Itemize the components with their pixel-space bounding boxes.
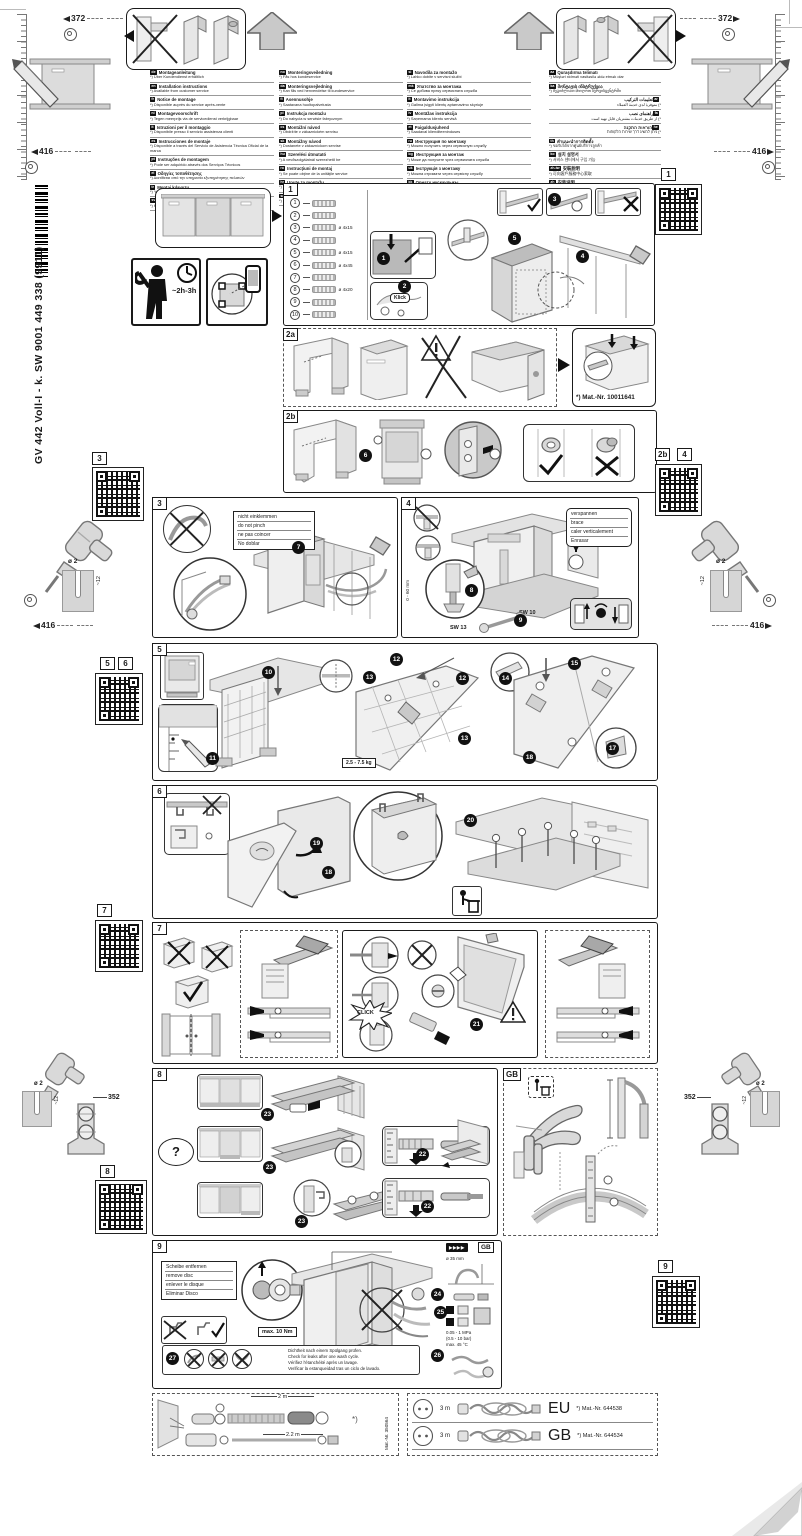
section-2a-label: 2a: [283, 328, 298, 341]
crossed-door-sketch: [624, 13, 674, 65]
crop-mark: [0, 9, 26, 10]
region-badge: EU: [548, 1400, 570, 1418]
language-entry: elΟδηγίες τοποθέτησης*) Διατίθεται από τ…: [150, 170, 274, 184]
brace-note: verspannenbracecaler verticalementEnrasa…: [566, 508, 632, 547]
language-note: *) Über Kundendienst erhältlich: [150, 75, 274, 80]
hang-door-panel-sketch: [226, 795, 352, 913]
qr-section-label: 5: [100, 657, 115, 670]
cord-length: 3 m: [440, 1433, 450, 1439]
remove-disc-note: Scheibe entfernenremove discenlever le d…: [161, 1261, 237, 1300]
part-row: 3 ø 4x15: [290, 222, 353, 234]
qr-code: [95, 1180, 147, 1234]
section-7-label: 7: [152, 922, 167, 935]
torque-label: max. 10 Nm: [258, 1327, 297, 1337]
warning-no-housing-sketch: [420, 334, 550, 402]
dim-416-right: 416: [712, 146, 777, 156]
part-callout-number: 8: [290, 285, 300, 295]
water-pressure-label: 0.05 - 1 MPa(0.5 - 10 bar)max. 45 °C: [446, 1330, 471, 1348]
language-note: *) ขอรับได้จากศูนย์บริการลูกค้า: [549, 144, 661, 149]
step-dot: 1: [377, 252, 390, 265]
drill-dia-label: ø 2: [68, 558, 77, 565]
language-entry: bgИнструкция за монтаж*) Може да получит…: [407, 151, 531, 165]
part-row: 2: [290, 209, 353, 221]
language-entry: ltMontavimo instrukcija*) Galima įsigyti…: [407, 96, 531, 110]
language-entry: ptInstruções de montagem*) Pode ser adqu…: [150, 156, 274, 170]
step-dot: 25: [434, 1306, 447, 1319]
klick-label: Klick: [390, 293, 410, 303]
language-entry: deMontageanleitung*) Über Kundendienst e…: [150, 69, 274, 83]
language-entry: etPaigaldusjuhend*) Saadaval klienditeen…: [407, 124, 531, 138]
wrench-size-label: SW 13: [450, 625, 467, 632]
part-icon: [312, 200, 336, 207]
language-note: *) Διατίθεται από την υπηρεσία εξυπηρέτη…: [150, 176, 274, 181]
part-size: ø 4x20: [339, 287, 353, 292]
step-dot: 6: [359, 449, 372, 462]
language-note: *) Disponible a través del Servicio de A…: [150, 144, 274, 154]
language-note: *) Може да получите чрез сервизната служ…: [407, 158, 531, 163]
power-cord-rows: 3 m EU *) Mat.-Nr. 644538 3 m: [412, 1396, 653, 1450]
hose-length-bottom: 2.2 m: [262, 1432, 324, 1438]
region-badge: GB: [548, 1427, 571, 1445]
qr-code: [655, 464, 702, 516]
language-entry: frNotice de montage*) Disponible auprès …: [150, 96, 274, 110]
template-on-door-sketch: [336, 652, 486, 774]
gb-fast-forward-chip: ▶▶▶▶: [446, 1243, 468, 1252]
drill-depth-label: ~12: [700, 576, 706, 585]
qr-section-label: 1: [661, 168, 676, 181]
step-dot: 22: [416, 1148, 429, 1161]
part-size: ø 4x45: [339, 263, 353, 268]
hook-detail-circle: [352, 790, 444, 882]
language-entry: enInstallation instructions*) Available …: [150, 83, 274, 97]
step-dot: 11: [206, 752, 219, 765]
plinth-panel-sketch-a: [268, 1074, 378, 1124]
pencil-cabinet-sketch-right: [690, 55, 790, 115]
crop-mark: [789, 0, 790, 24]
step-dot: 12: [456, 672, 469, 685]
qr-section-label: 4: [677, 448, 692, 461]
tap-hint-box: [161, 1316, 227, 1344]
under-sink-sketch: [262, 1250, 442, 1360]
page-corner-fold: [732, 1482, 802, 1536]
language-entry: nlMontagevoorschrift*) Tegen meerprijs v…: [150, 110, 274, 124]
language-entry: fiAsennusohje*) Saatavana huoltopalvelus…: [279, 96, 403, 110]
power-cord-icon: [456, 1426, 542, 1446]
door-panel-profiles: [180, 12, 242, 66]
language-note: *) Available from customer service: [150, 89, 274, 94]
language-entry: huSzerelési útmutató*) A vevőszolgálatná…: [279, 151, 403, 165]
step-dot: 8: [465, 584, 478, 597]
language-note: *) Do nabycia w serwisie fabrycznym: [279, 117, 403, 122]
power-cord-row: 3 m EU *) Mat.-Nr. 644538: [412, 1396, 653, 1423]
inner-door-screws-sketch: [452, 792, 652, 914]
step-dot: 27: [166, 1352, 179, 1365]
fixing-detail-sketch: [346, 933, 534, 1055]
step-dot: 4: [576, 250, 589, 263]
part-icon: [312, 262, 336, 269]
section-4-label: 4: [401, 497, 416, 510]
language-entry: kaმონტაჟის ინსტრუქცია*) შეგიძლიათ მიიღოთ…: [549, 83, 661, 97]
drill-hole-mark: [25, 161, 38, 174]
instruction-sheet: 372 416: [0, 0, 802, 1536]
part-callout-number: 5: [290, 248, 300, 258]
language-list-col4: azQuraşdırma təlimatı*) Müştəri xidməti …: [549, 69, 661, 193]
power-cord-icon: [456, 1399, 542, 1419]
part-row: 1: [290, 197, 353, 209]
cabinet-variants-icons: [160, 932, 236, 1012]
part-callout-number: 7: [290, 273, 300, 283]
language-entry: noMonteringsveiledning*) Fås hos kundese…: [279, 69, 403, 83]
step-dot: 18: [322, 866, 335, 879]
section-5-label: 5: [152, 643, 167, 656]
part-icon: [312, 311, 336, 318]
language-note: *) Можно получить через сервисную службу: [407, 144, 531, 149]
dim-416-left: 416: [28, 146, 93, 156]
language-note: *) Galima įsigyti klientų aptarnavimo sk…: [407, 103, 531, 108]
language-entry: skMontážny návod*) Dostanete v zákazníck…: [279, 138, 403, 152]
language-note: *) از طریق خدمات مشتریان قابل تهیه است: [549, 117, 661, 122]
appliance-front-sketch: [362, 418, 440, 488]
step-dot: 3: [548, 193, 561, 206]
qr-code: [655, 184, 702, 235]
step-dot: 7: [292, 541, 305, 554]
qr-section-label: 6: [118, 657, 133, 670]
side-panel-kit-sketch: [576, 332, 652, 390]
door-weight-label: 2.5 - 7.5 kg: [342, 758, 376, 768]
model-code-vertical: GV 442 Voll-I - k. SW 9001 449 338 (9911…: [33, 284, 45, 464]
part-icon: [312, 274, 336, 281]
kitchen-variant-mini: [197, 1182, 263, 1218]
language-note: *) Fås hos kundeservice: [279, 75, 403, 80]
part-row: 8 ø 4x20: [290, 284, 353, 296]
language-note: *) Се добива преку сервисната служба: [407, 89, 531, 94]
appliance-front-mini: [160, 652, 204, 700]
language-entry: mkУпатство за монтажа*) Се добива преку …: [407, 83, 531, 97]
language-entry: csMontážní návod*) Obdržíte v zákaznické…: [279, 124, 403, 138]
section-3-label: 3: [152, 497, 167, 510]
section-2b-label: 2b: [283, 410, 298, 423]
language-entry: zh-tw安裝說明*) 可向客戶服務中心索取: [549, 165, 661, 179]
language-note: *) Pode ser adquirido através dos Serviç…: [150, 163, 274, 168]
door-panel-profiles: [560, 12, 622, 66]
part-size: ø 4x15: [339, 225, 353, 230]
step-dot: 13: [458, 732, 471, 745]
step-dot: 24: [431, 1288, 444, 1301]
section-gb-label: GB: [503, 1068, 521, 1081]
crossed-door-sketch: [131, 13, 181, 65]
language-entry: roInstrucţiuni de montaj*) Se poate obţi…: [279, 165, 403, 179]
drill-hole-mark: [763, 594, 776, 607]
language-note: *) Saatavana huoltopalvelusta: [279, 103, 403, 108]
hose-through-sketch: [446, 1262, 496, 1288]
socket-icon: [412, 1425, 434, 1447]
language-note: *) ניתן להשיג דרך שירות הלקוחות: [549, 130, 661, 135]
warning-triangle-icon: [500, 1000, 526, 1024]
svg-text:*): *): [352, 1415, 358, 1424]
step-dot: 20: [464, 814, 477, 827]
height-range-label: 0 - 60 mm: [405, 580, 410, 601]
bracket-ok-wrong-inset: [164, 793, 230, 855]
plug-detail-circle: [443, 420, 503, 480]
part-icon: [312, 249, 336, 256]
dim-372-right: 372: [678, 13, 743, 23]
part-icon: [312, 224, 336, 231]
language-entry: ruИнструкция по монтажу*) Можно получить…: [407, 138, 531, 152]
qr-code: [652, 1276, 700, 1328]
part-row: 10: [290, 309, 353, 321]
language-entry: ko설치 설명서*) 서비스 센터에서 구입 가능: [549, 151, 661, 165]
section-9-label: 9: [152, 1240, 167, 1253]
part-row: 4: [290, 234, 353, 246]
side-panel-mat-nr: *) Mat.-Nr. 10011641: [576, 394, 635, 401]
step-dot: 18: [523, 751, 536, 764]
language-entry: esInstrucciones de montaje*) Disponible …: [150, 138, 274, 157]
no-trap-icon: [232, 1349, 252, 1369]
part-row: 6 ø 4x45: [290, 259, 353, 271]
step-dot: 9: [514, 614, 527, 627]
step-dot: 10: [262, 666, 275, 679]
arrow-up-icon-right: [504, 12, 554, 50]
language-entry: faراهنمای نصب*) از طریق خدمات مشتریان قا…: [549, 110, 661, 124]
drill-depth-label: ~12: [96, 576, 102, 585]
section-8-label: 8: [152, 1068, 167, 1081]
kitchen-variant-mini: [197, 1126, 263, 1162]
fixing-variant-b-sketch: [549, 934, 646, 1054]
pencil-cabinet-sketch-left: [12, 55, 112, 115]
language-entry: azQuraşdırma təlimatı*) Müştəri xidməti …: [549, 69, 661, 83]
cord-mat-nr: *) Mat.-Nr. 644534: [577, 1433, 623, 1439]
install-time-label: ~2h-3h: [172, 286, 196, 295]
divider: [367, 190, 368, 320]
part-callout-number: 9: [290, 297, 300, 307]
drill-depth-label: ~12: [742, 1096, 748, 1104]
gb-chip: GB: [478, 1242, 494, 1253]
language-entry: slNavodila za montažo*) Lahko dobite v s…: [407, 69, 531, 83]
qr-code: [92, 467, 144, 521]
language-note: *) Müştəri xidməti vasitəsilə əldə etmək…: [549, 75, 661, 80]
niche-sketch: [292, 336, 350, 400]
step-dot: 23: [295, 1215, 308, 1228]
clock-icon: [176, 262, 198, 284]
parts-list: 1 2 3 ø 4x15 4: [290, 197, 353, 321]
rail-wrong-mini: [595, 188, 641, 216]
part-callout-number: 2: [290, 211, 300, 221]
hinge-bracket-part: [694, 1102, 746, 1156]
language-note: *) Saadaval klienditeeninduses: [407, 130, 531, 135]
language-note: *) متوفرة لدى خدمة العملاء: [549, 103, 661, 108]
drill-dia-label: ø 2: [716, 558, 725, 565]
part-icon: [312, 286, 336, 293]
kitchen-variant-mini: [197, 1074, 263, 1110]
gap-wrong-detail: [412, 503, 442, 533]
language-note: *) შეგიძლიათ მიიღოთ სერვისცენტრში: [549, 89, 661, 94]
niche-sketch: [292, 418, 358, 486]
language-note: *) Disponibile presso il servizio assist…: [150, 130, 274, 135]
panel-fittings-sketch: [488, 650, 650, 774]
dim-352-right: 352: [684, 1094, 712, 1101]
hose-extension-sketch: *): [156, 1398, 374, 1452]
language-note: *) Se poate obţine de la unităţile servi…: [279, 172, 403, 177]
language-note: *) Lahko dobite v servisni službi: [407, 75, 531, 80]
step-dot: 5: [508, 232, 521, 245]
language-note: *) Можна отримати через сервісну службу: [407, 172, 531, 177]
language-note: *) Tegen meerprijs via de servicedienst …: [150, 117, 274, 122]
language-entry: thคำแนะนำการติดตั้ง*) ขอรับได้จากศูนย์บร…: [549, 138, 661, 152]
installer-icon: [135, 263, 177, 321]
socket-icon: [412, 1398, 434, 1420]
part-row: 7: [290, 271, 353, 283]
hose-routing-detail-circle: [172, 556, 248, 632]
step-dot: 2: [398, 280, 411, 293]
corner-install-sketch: [440, 1118, 495, 1170]
step-dot: 13: [363, 671, 376, 684]
qr-section-label: 3: [92, 452, 107, 465]
part-callout-number: 10: [290, 310, 300, 320]
arrow-up-icon-left: [247, 12, 297, 50]
language-note: *) A vevőszolgálatnál szerezhető be: [279, 158, 403, 163]
part-row: 5 ø 4x15: [290, 247, 353, 259]
no-kink-icon: [184, 1349, 204, 1369]
drill-hole-mark: [24, 594, 37, 607]
part-callout-number: 4: [290, 235, 300, 245]
double-door-schematic: [160, 1012, 222, 1058]
section-6-label: 6: [152, 785, 167, 798]
drill-hole-box: [710, 570, 742, 612]
question-cloud: ?: [158, 1138, 194, 1166]
step-dot: 23: [263, 1161, 276, 1174]
part-icon: [312, 212, 336, 219]
qr-section-label: 7: [97, 904, 112, 917]
drill-hole-mark: [762, 161, 775, 174]
cord-length: 3 m: [440, 1406, 450, 1412]
drill-hole-box: [62, 570, 94, 612]
part-icon: [312, 299, 336, 306]
arrow-right-icon: [676, 30, 692, 42]
clip-scale-box: [382, 1178, 490, 1218]
plinth-panel-sketch-b: [268, 1126, 378, 1176]
language-note: *) 可向客戶服務中心索取: [549, 172, 661, 177]
no-crush-icon: [208, 1349, 228, 1369]
click-label: CLICK: [357, 1010, 374, 1016]
language-entry: daMonteringsvejledning*) Kan fås ved hen…: [279, 83, 403, 97]
language-note: *) Saņemama klientu servisā: [407, 117, 531, 122]
section-1-label: 1: [283, 183, 298, 196]
drain-connect-sketch: [448, 1352, 496, 1382]
step-dot: 23: [261, 1108, 274, 1121]
step-dot: 17: [606, 742, 619, 755]
language-entry: ukІнструкція з монтажу*) Можна отримати …: [407, 165, 531, 179]
qr-section-label: 2b: [655, 448, 670, 461]
hose-clip-sketch: [596, 1074, 654, 1160]
qr-section-label: 9: [658, 1260, 673, 1273]
language-note: *) Kan fås ved henvendelse til kundeserv…: [279, 89, 403, 94]
language-list-col3: slNavodila za montažo*) Lahko dobite v s…: [407, 69, 531, 193]
step-dot: 21: [470, 1018, 483, 1031]
language-entry: arتعليمات التركيب*) متوفرة لدى خدمة العم…: [549, 96, 661, 110]
step-dot: 26: [431, 1349, 444, 1362]
appliance-iso-sketch: [440, 218, 652, 323]
drill-hole-box: [750, 1091, 780, 1127]
drill-dia-label: ø 2: [34, 1081, 43, 1087]
dim-416-margin-left: 416: [30, 620, 95, 630]
qr-code: [95, 920, 143, 972]
dim-352-left: 352: [92, 1094, 120, 1101]
language-note: *) 서비스 센터에서 구입 가능: [549, 158, 661, 163]
drain-hose-arc-sketch: [530, 1150, 650, 1230]
connection-stack-sketch: [440, 1292, 498, 1328]
part-size: ø 4x15: [339, 250, 353, 255]
dim-416-margin-right: 416: [710, 620, 775, 630]
part-callout-number: 3: [290, 223, 300, 233]
plug-ok-wrong-box: [523, 424, 635, 482]
disposal-hint-box: [452, 886, 482, 916]
language-entry: heהוראות התקנה*) ניתן להשיג דרך שירות הל…: [549, 124, 661, 138]
hole-dia-label: ø 35 mm: [446, 1256, 464, 1262]
step-dot: 14: [499, 672, 512, 685]
language-note: *) Obdržíte v zákaznickém servisu: [279, 130, 403, 135]
hose-mat-nr-vertical: Mat.-Nr. 350564: [384, 1398, 389, 1450]
drill-hole-box: [22, 1091, 52, 1127]
language-note: *) Disponible auprès du service après-ve…: [150, 103, 274, 108]
kitchen-cabinets-sketch: [161, 194, 265, 242]
language-note: *) Dostanete v zákazníckom servise: [279, 144, 403, 149]
part-icon: [312, 237, 336, 244]
dim-372-left: 372: [60, 13, 125, 23]
alignment-hint-box: [570, 598, 632, 630]
phone-scan-icon: [210, 262, 264, 322]
step-dot: 22: [421, 1200, 434, 1213]
step-dot: 15: [568, 657, 581, 670]
hinge-bracket-part: [60, 1102, 112, 1156]
language-entry: plInstrukcja montażu*) Do nabycia w serw…: [279, 110, 403, 124]
step-dot: 12: [390, 653, 403, 666]
drill-dia-label: ø 2: [756, 1081, 765, 1087]
language-entry: lvMontāžas instrukcija*) Saņemama klient…: [407, 110, 531, 124]
hose-length-top: 2 m: [250, 1394, 315, 1400]
step-dot: 19: [310, 837, 323, 850]
qr-code: [95, 673, 143, 725]
power-cord-row: 3 m GB *) Mat.-Nr. 644534: [412, 1423, 653, 1450]
leak-check-text: Dichtheit nach einem Spülgang prüfen.Che…: [288, 1348, 380, 1372]
part-callout-number: 1: [290, 198, 300, 208]
language-entry: itIstruzioni per il montaggio*) Disponib…: [150, 124, 274, 138]
part-callout-number: 6: [290, 260, 300, 270]
qr-section-label: 8: [100, 1165, 115, 1178]
disposal-hint-mini: [528, 1076, 554, 1098]
cabinet-sketch: [355, 336, 413, 400]
pinched-hose-crossed-icon: [163, 505, 211, 553]
drill-hole-mark: [722, 28, 735, 41]
part-row: 9: [290, 296, 353, 308]
rail-ok-mini: [497, 188, 543, 216]
drill-hole-mark: [64, 28, 77, 41]
cord-mat-nr: *) Mat.-Nr. 644538: [576, 1406, 622, 1412]
fixing-variant-a-sketch: [244, 934, 334, 1054]
